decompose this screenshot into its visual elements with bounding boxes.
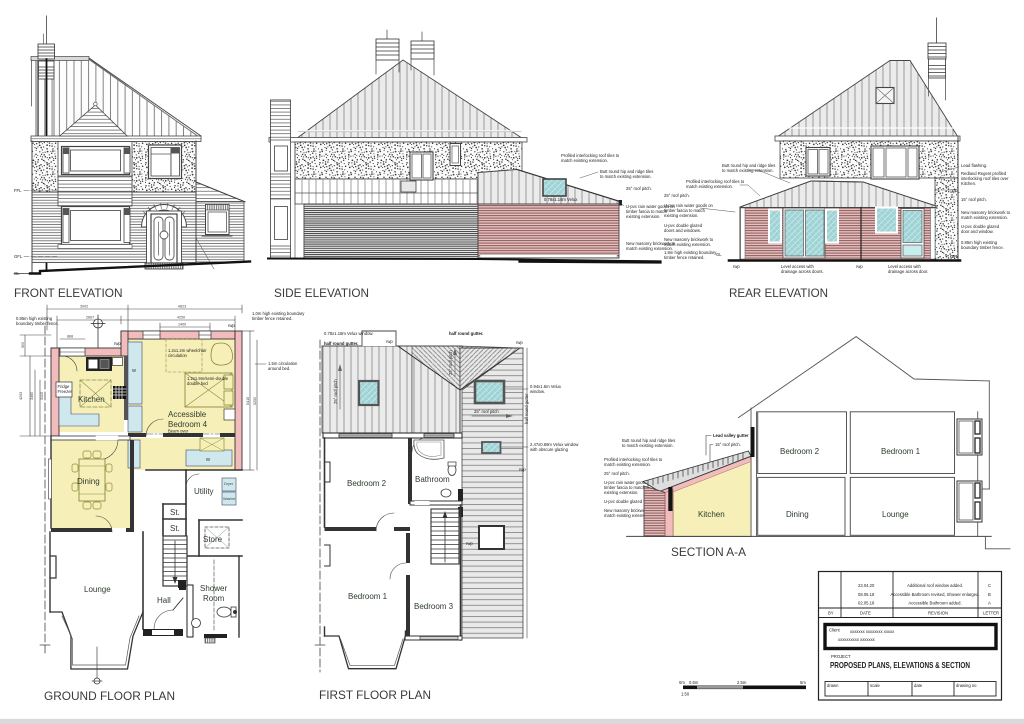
svg-text:Washer: Washer [223, 497, 236, 501]
svg-text:doors and windows.: doors and windows. [664, 228, 701, 233]
svg-text:drawing no: drawing no [956, 683, 977, 688]
svg-text:REAR ELEVATION: REAR ELEVATION [729, 286, 828, 300]
svg-text:GFL: GFL [950, 254, 959, 259]
svg-text:25° roof pitch: 25° roof pitch [333, 379, 338, 404]
svg-text:Dining: Dining [77, 477, 100, 486]
svg-text:1400: 1400 [178, 323, 186, 327]
svg-text:date: date [914, 683, 923, 688]
svg-text:timber fence retained.: timber fence retained. [664, 255, 705, 260]
svg-text:match existing extension.: match existing extension. [561, 158, 608, 163]
svg-text:circulation: circulation [168, 353, 188, 358]
svg-text:Dryer: Dryer [224, 482, 234, 486]
svg-text:Kitchen.: Kitchen. [961, 181, 976, 186]
svg-text:4293: 4293 [19, 392, 23, 400]
svg-text:match existing extension.: match existing extension. [664, 242, 711, 247]
svg-text:to match existing extension.: to match existing extension. [622, 443, 674, 448]
svg-text:scale: scale [870, 683, 880, 688]
svg-text:match existing extension.: match existing extension. [686, 184, 733, 189]
svg-text:25° roof pitch: 25° roof pitch [448, 350, 453, 375]
svg-text:window.: window. [530, 389, 545, 394]
svg-text:Client: Client [829, 628, 841, 633]
svg-text:3002: 3002 [80, 305, 88, 309]
svg-text:15° roof pitch.: 15° roof pitch. [715, 442, 741, 447]
svg-text:A: A [988, 601, 991, 606]
svg-text:25° roof pitch: 25° roof pitch [474, 409, 499, 414]
svg-text:PROPOSED PLANS, ELEVATIONS & S: PROPOSED PLANS, ELEVATIONS & SECTION [830, 660, 970, 670]
svg-text:PROJECT: PROJECT [831, 654, 851, 659]
svg-text:Freezer: Freezer [58, 389, 73, 394]
svg-text:existing extension.: existing extension. [604, 490, 638, 495]
svg-text:Accessible Bathroom revised, S: Accessible Bathroom revised, Shower enla… [890, 592, 979, 597]
svg-text:St.: St. [170, 508, 180, 517]
svg-text:3115: 3115 [40, 392, 44, 400]
svg-text:5m: 5m [800, 680, 806, 685]
svg-text:existing extension.: existing extension. [664, 213, 698, 218]
svg-text:REVISION: REVISION [928, 611, 948, 616]
svg-text:FFL: FFL [952, 189, 960, 194]
svg-text:2.5m: 2.5m [737, 680, 747, 685]
svg-text:25° roof pitch.: 25° roof pitch. [604, 471, 630, 476]
svg-text:Bedroom 2: Bedroom 2 [780, 447, 820, 456]
svg-text:to match existing extension.: to match existing extension. [600, 174, 652, 179]
svg-text:rwp: rwp [466, 541, 473, 546]
svg-text:SECTION A-A: SECTION A-A [671, 545, 747, 559]
svg-text:B: B [988, 592, 991, 597]
svg-text:0.78x1.18m Velux window.: 0.78x1.18m Velux window. [324, 331, 373, 336]
svg-text:Lead valley gutter: Lead valley gutter [713, 433, 749, 438]
svg-text:match existing extension.: match existing extension. [961, 215, 1008, 220]
svg-text:Hall: Hall [157, 596, 171, 605]
svg-text:Dining: Dining [786, 510, 809, 519]
svg-text:FRONT ELEVATION: FRONT ELEVATION [14, 286, 123, 300]
svg-text:Kitchen: Kitchen [78, 395, 105, 404]
svg-text:FIRST FLOOR PLAN: FIRST FLOOR PLAN [319, 688, 431, 702]
svg-text:rwp: rwp [114, 341, 121, 346]
svg-text:rwp: rwp [519, 467, 526, 472]
svg-text:double bed: double bed [187, 381, 208, 386]
svg-text:Lounge: Lounge [882, 510, 909, 519]
svg-text:BY: BY [828, 611, 834, 616]
svg-text:W: W [132, 368, 136, 373]
svg-text:02.05.18: 02.05.18 [858, 601, 875, 606]
svg-text:door and window.: door and window. [961, 229, 994, 234]
svg-text:C: C [988, 583, 991, 588]
svg-text:Additional roof window added.: Additional roof window added. [907, 583, 963, 588]
svg-text:3460: 3460 [30, 392, 34, 400]
svg-text:LETTER: LETTER [983, 611, 999, 616]
svg-text:rwp: rwp [856, 264, 863, 269]
svg-text:23.04.20: 23.04.20 [858, 583, 875, 588]
svg-text:timber fence retained.: timber fence retained. [252, 316, 293, 321]
svg-text:rwp: rwp [386, 339, 393, 344]
svg-text:Utility: Utility [194, 487, 214, 496]
svg-text:boundary timber fence.: boundary timber fence. [16, 321, 59, 326]
svg-text:match existing extension.: match existing extension. [604, 462, 651, 467]
svg-text:drainage across doors.: drainage across doors. [781, 269, 824, 274]
svg-text:Accessible: Accessible [168, 410, 207, 419]
svg-text:half round gutter.: half round gutter. [324, 341, 358, 346]
svg-text:25° roof pitch.: 25° roof pitch. [664, 193, 690, 198]
svg-text:0m: 0m [679, 680, 685, 685]
svg-text:FFL: FFL [14, 188, 22, 193]
svg-text:1:50: 1:50 [681, 692, 690, 697]
svg-text:Bedroom 1: Bedroom 1 [881, 447, 921, 456]
svg-text:GL: GL [14, 271, 20, 276]
svg-text:SIDE ELEVATION: SIDE ELEVATION [274, 286, 369, 300]
svg-text:rwp: rwp [733, 264, 740, 269]
svg-text:rwp: rwp [516, 340, 523, 345]
svg-text:with obscure glazing: with obscure glazing [530, 447, 569, 452]
svg-text:to match existing extension.: to match existing extension. [722, 168, 774, 173]
svg-text:Lounge: Lounge [84, 585, 111, 594]
svg-text:Bathroom: Bathroom [415, 475, 450, 484]
svg-text:half round gutter.: half round gutter. [449, 331, 483, 336]
svg-text:xxxxxxx xxxxxxxx xxxxx: xxxxxxx xxxxxxxx xxxxx [850, 629, 895, 634]
svg-text:GL: GL [716, 252, 722, 257]
svg-text:half round gutter: half round gutter [524, 393, 529, 424]
svg-text:GFL: GFL [14, 254, 23, 259]
svg-text:900: 900 [21, 342, 25, 348]
svg-text:0.5m: 0.5m [689, 680, 699, 685]
svg-text:2667: 2667 [86, 316, 94, 320]
svg-text:Store: Store [203, 535, 223, 544]
svg-text:existing extension.: existing extension. [626, 214, 660, 219]
svg-text:W: W [206, 457, 210, 462]
svg-text:St.: St. [170, 524, 180, 533]
svg-text:15° roof pitch.: 15° roof pitch. [961, 197, 987, 202]
svg-text:08.05.18: 08.05.18 [858, 592, 875, 597]
svg-text:Bedroom 3: Bedroom 3 [414, 602, 454, 611]
svg-text:around bed.: around bed. [268, 366, 290, 371]
svg-text:Bedroom 2: Bedroom 2 [347, 479, 387, 488]
svg-text:boundary timber fence.: boundary timber fence. [961, 245, 1004, 250]
svg-text:Kitchen: Kitchen [698, 510, 725, 519]
svg-text:0.78x1.18m Velux: 0.78x1.18m Velux [544, 197, 578, 202]
svg-text:GROUND FLOOR PLAN: GROUND FLOOR PLAN [44, 689, 175, 703]
svg-text:888: 888 [67, 335, 73, 339]
svg-text:5415: 5415 [246, 397, 250, 405]
svg-text:4823: 4823 [178, 305, 186, 309]
svg-text:4250: 4250 [177, 316, 185, 320]
svg-text:xxxxxxxxxx xxxxxxx: xxxxxxxxxx xxxxxxx [838, 637, 876, 642]
svg-text:Accessible Bathroom added.: Accessible Bathroom added. [908, 601, 961, 606]
svg-text:Beam over: Beam over [168, 429, 189, 434]
svg-text:drainage across door.: drainage across door. [888, 269, 928, 274]
svg-text:rwp: rwp [228, 323, 235, 328]
svg-text:25° roof pitch.: 25° roof pitch. [626, 186, 652, 191]
svg-text:drawn: drawn [827, 683, 839, 688]
svg-text:5250: 5250 [253, 397, 257, 405]
svg-text:DATE: DATE [860, 611, 871, 616]
svg-text:Lead flashing.: Lead flashing. [961, 163, 987, 168]
svg-text:Bedroom 1: Bedroom 1 [348, 592, 388, 601]
